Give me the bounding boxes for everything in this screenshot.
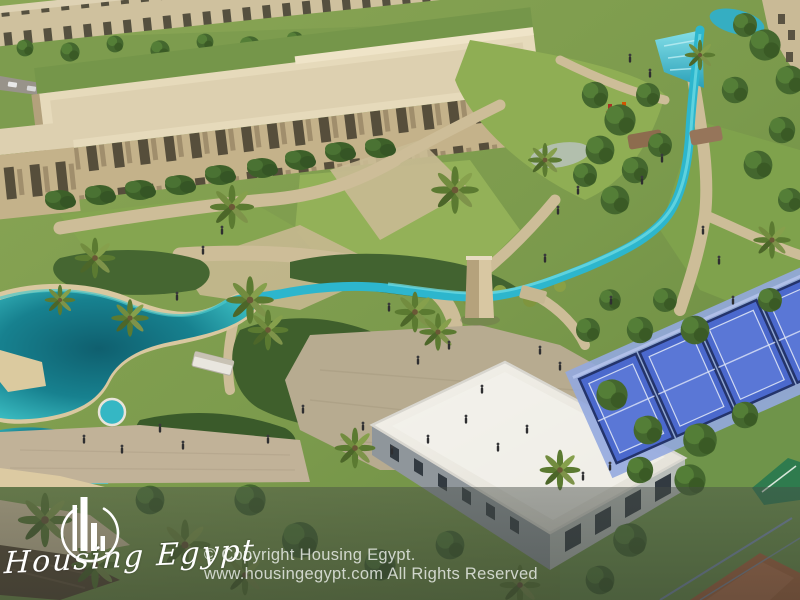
aqua-slide (99, 399, 125, 425)
screenshot-root: Housing Egypt © Copyright Housing Egypt.… (0, 0, 800, 600)
copyright-line2: www.housingegypt.com All Rights Reserved (204, 565, 538, 584)
copyright-notice: © Copyright Housing Egypt. www.housingeg… (204, 546, 538, 584)
watermark-band: Housing Egypt © Copyright Housing Egypt.… (0, 487, 800, 600)
copyright-line1: © Copyright Housing Egypt. (204, 546, 538, 565)
